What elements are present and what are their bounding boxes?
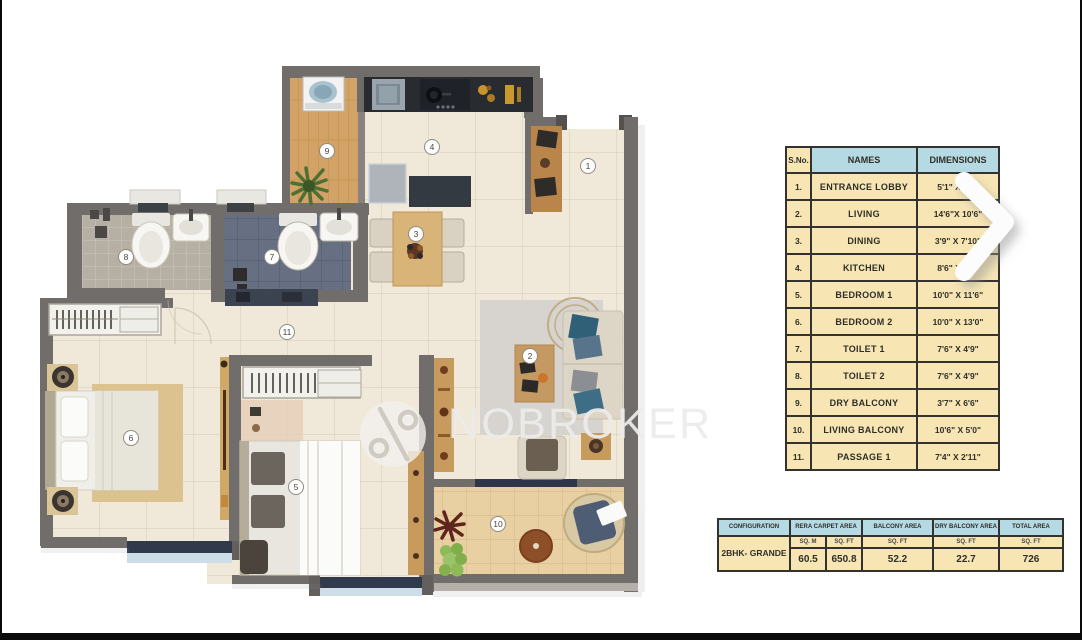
svg-text:10: 10 xyxy=(493,519,503,529)
svg-text:2: 2 xyxy=(528,351,533,361)
svg-text:5: 5 xyxy=(294,482,299,492)
svg-text:8: 8 xyxy=(124,252,129,262)
svg-text:4: 4 xyxy=(430,142,435,152)
svg-text:9: 9 xyxy=(325,146,330,156)
svg-text:11: 11 xyxy=(283,327,292,337)
svg-text:3: 3 xyxy=(414,229,419,239)
svg-text:7: 7 xyxy=(270,252,275,262)
svg-text:6: 6 xyxy=(129,433,134,443)
svg-text:1: 1 xyxy=(586,161,591,171)
svg-text:NOBROKER: NOBROKER xyxy=(448,400,713,448)
